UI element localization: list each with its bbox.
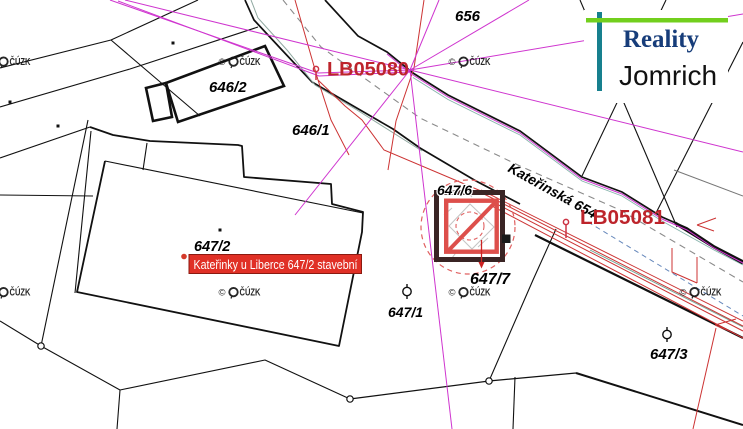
svg-text:LB05080: LB05080 [327,60,409,81]
svg-text:LB05081: LB05081 [580,207,665,229]
svg-text:656: 656 [455,8,481,25]
svg-text:Jomrich: Jomrich [619,60,717,91]
svg-text:646/1: 646/1 [292,122,330,139]
svg-text:647/1: 647/1 [388,304,423,320]
svg-text:647/7: 647/7 [470,271,511,288]
svg-text:647/6: 647/6 [437,182,472,198]
svg-text:Kateřinky u Liberce 647/2 stav: Kateřinky u Liberce 647/2 stavební [194,257,358,272]
svg-text:646/2: 646/2 [209,79,247,96]
svg-text:647/2: 647/2 [194,239,230,255]
svg-text:647/3: 647/3 [650,346,688,363]
svg-text:Reality: Reality [623,26,699,53]
